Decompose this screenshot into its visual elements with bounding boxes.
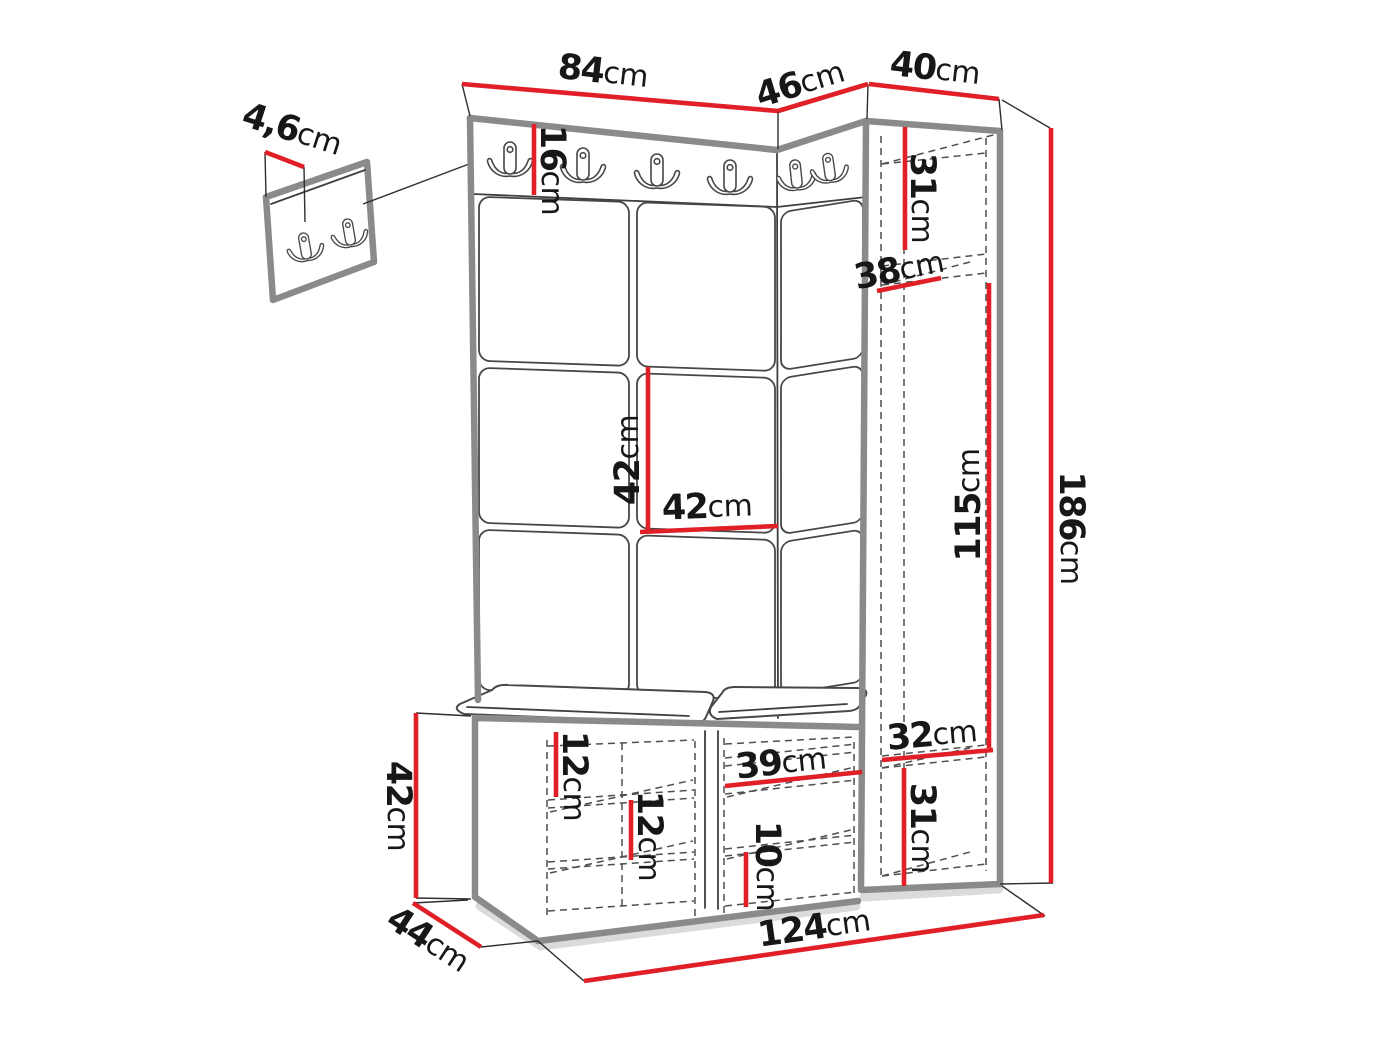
dim-line-4-6cm	[265, 152, 304, 167]
dim-tile-width: 42cm	[661, 485, 753, 528]
dimension-diagram: 4,6cm 84cm 46cm 40cm 16cm 31cm 38cm 42cm…	[0, 0, 1386, 1040]
dim-bench-top-shelf-gap: 12cm	[554, 731, 594, 821]
dim-bench-bottom-shelf-gap: 10cm	[747, 821, 787, 911]
dim-cabinet-bottom-shelf-height: 31cm	[902, 783, 942, 873]
diagram-svg: 4,6cm 84cm 46cm 40cm 16cm 31cm 38cm 42cm…	[0, 0, 1386, 1040]
panel-tiles-corner	[781, 199, 863, 694]
corner-crease-line	[777, 150, 778, 718]
dim-top-panel-width: 84cm	[556, 47, 650, 97]
dim-detail-panel-thickness: 4,6cm	[237, 95, 347, 165]
hook-panel-detail	[266, 162, 374, 300]
dim-bench-mid-shelf-gap: 12cm	[629, 791, 669, 881]
dim-tile-height: 42cm	[608, 415, 648, 505]
dim-total-height: 186cm	[1051, 471, 1091, 584]
dim-hook-strip-height: 16cm	[532, 125, 572, 215]
wall-panel	[470, 117, 866, 718]
detail-leader-line	[363, 161, 477, 204]
dim-cabinet-top-shelf-height: 31cm	[902, 153, 942, 243]
dim-cabinet-middle-height: 115cm	[949, 448, 989, 561]
dim-bench-height: 42cm	[378, 761, 418, 851]
